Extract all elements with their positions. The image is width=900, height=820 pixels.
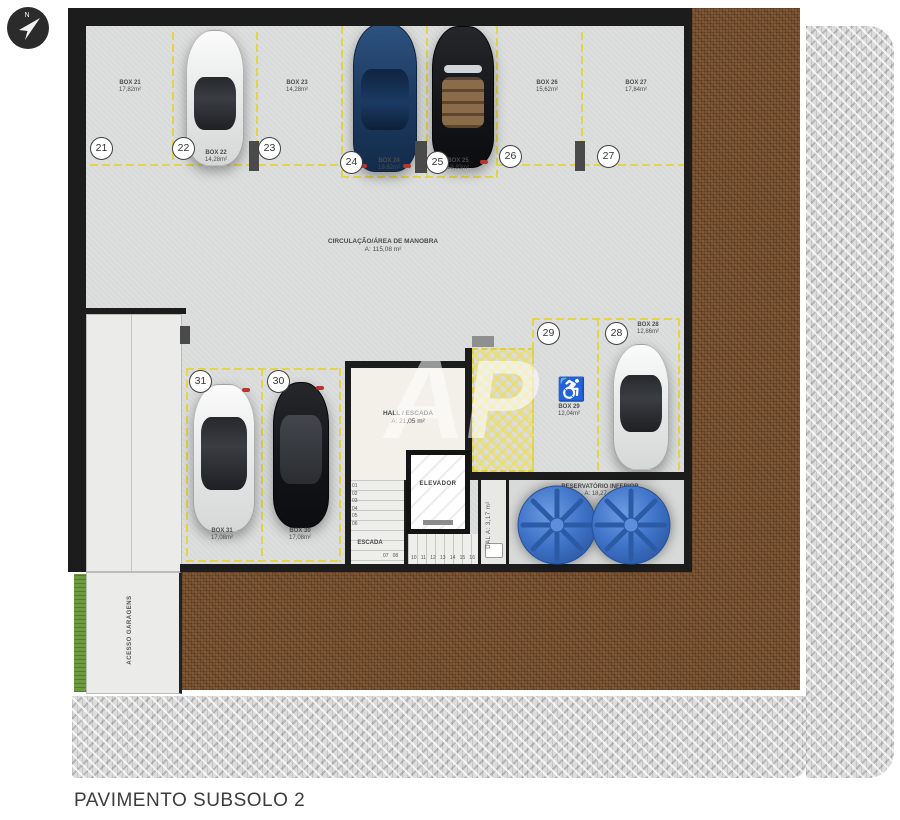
box-area-text: 17,82m² <box>102 87 158 94</box>
car-windshield <box>444 65 482 73</box>
car-box28 <box>613 344 669 470</box>
box-26-marker: 26 <box>499 145 522 168</box>
step-number: 04 <box>352 506 358 512</box>
elevator-sill <box>423 520 453 525</box>
ramp-edge-line <box>131 315 132 571</box>
box-label-text: BOX 23 <box>286 80 307 86</box>
wall-top <box>68 8 692 26</box>
parking-line <box>532 318 534 472</box>
hall-area-text: A: 21,05 m² <box>363 418 453 426</box>
car-cabin <box>201 417 247 490</box>
water-tanks <box>509 481 684 565</box>
box-area-text: 12,04m² <box>541 411 597 418</box>
column <box>575 141 585 171</box>
parking-line <box>498 164 684 166</box>
parking-line <box>341 176 498 178</box>
box-area-text: 19,83m² <box>430 165 486 172</box>
box-24-label: BOX 24 19,82m² <box>361 158 417 171</box>
box-24-marker: 24 <box>340 151 363 174</box>
circulation-label: CIRCULAÇÃO/ÁREA DE MANOBRA A: 115,08 m² <box>303 238 463 253</box>
step-number: 06 <box>352 521 358 527</box>
box-29-marker: 29 <box>537 322 560 345</box>
elevator-shaft: ELEVADOR <box>406 450 470 534</box>
box-label-text: BOX 21 <box>119 80 140 86</box>
parking-line <box>186 368 188 562</box>
box-area-text: 12,86m² <box>620 329 676 336</box>
car-cabin <box>194 77 237 131</box>
hall-label: HALL / ESCADA A: 21,05 m² <box>363 410 453 425</box>
car-interior <box>442 77 484 127</box>
step-number: 16 <box>469 555 475 561</box>
step-number: 12 <box>430 555 436 561</box>
north-letter: N <box>24 12 29 19</box>
box-label-text: BOX 24 <box>378 158 399 164</box>
step-number: 11 <box>421 555 426 561</box>
dal-room <box>481 480 506 564</box>
hatched-area <box>472 348 534 472</box>
paver-walkway-bottom <box>72 696 806 778</box>
step-number: 14 <box>450 555 456 561</box>
parking-line <box>186 560 341 562</box>
step-number: 03 <box>352 498 358 504</box>
box-31-marker: 31 <box>189 370 212 393</box>
box-21-label: BOX 21 17,82m² <box>102 80 158 93</box>
wall-reservoir-top <box>465 472 684 480</box>
step-number: 05 <box>352 513 358 519</box>
box-27-label: BOX 27 17,84m² <box>608 80 664 93</box>
box-28-label: BOX 28 12,86m² <box>620 322 676 335</box>
box-label-text: BOX 30 <box>289 528 310 534</box>
box-30-marker: 30 <box>267 370 290 393</box>
box-21-marker: 21 <box>90 137 113 160</box>
box-29-label: BOX 29 12,04m² <box>541 404 597 417</box>
step-number: 02 <box>352 491 358 497</box>
box-label-text: BOX 22 <box>205 150 226 156</box>
step-number: 01 <box>352 483 358 489</box>
wall-hall-top <box>351 361 465 368</box>
box-area-text: 17,08m² <box>194 535 250 542</box>
wall-bottom <box>180 564 692 572</box>
box-31-label: BOX 31 17,08m² <box>194 528 250 541</box>
paver-walkway-right <box>806 26 894 778</box>
parking-line <box>532 318 680 320</box>
parking-line <box>597 318 599 472</box>
box-23-marker: 23 <box>258 137 281 160</box>
parking-line <box>186 368 341 370</box>
parking-line <box>496 26 498 178</box>
north-arrow-icon: N <box>6 6 50 50</box>
stairs-upper-flight <box>351 480 406 564</box>
step-number: 08 <box>393 553 399 559</box>
step-number: 13 <box>440 555 446 561</box>
step-number: 15 <box>460 555 466 561</box>
water-tank-left <box>518 486 596 564</box>
water-tank-right <box>592 486 670 564</box>
parking-line <box>678 318 680 472</box>
garage-access-label: ACESSO GARAGENS <box>127 575 133 685</box>
hall-label-text: HALL / ESCADA <box>383 410 433 417</box>
stair-step-numbers-bottom: 10 11 12 13 14 15 16 <box>411 555 475 561</box>
box-area-text: 19,82m² <box>361 165 417 172</box>
box-label-text: BOX 28 <box>637 322 658 328</box>
stair-step-numbers-left: 01 02 03 04 05 06 <box>352 483 358 527</box>
taillight <box>242 388 250 392</box>
box-area-text: 17,08m² <box>272 535 328 542</box>
dal-label: DAL A: 3,17 m² <box>486 495 492 555</box>
box-22-label: BOX 22 14,28m² <box>188 150 244 163</box>
box-label-text: BOX 31 <box>211 528 232 534</box>
box-23-label: BOX 23 14,28m² <box>269 80 325 93</box>
stairs-label: ESCADA <box>347 540 393 548</box>
car-box24 <box>353 24 417 172</box>
stair-step-numbers-mid: 07 08 <box>383 553 398 559</box>
car-cabin <box>280 415 321 484</box>
wall-ramp-top <box>86 308 186 314</box>
wall-right <box>684 8 692 572</box>
box-label-text: BOX 27 <box>625 80 646 86</box>
car-cabin <box>361 69 408 130</box>
box-area-text: 14,28m² <box>269 87 325 94</box>
step-number: 10 <box>411 555 417 561</box>
wheelchair-icon: ♿ <box>557 376 586 403</box>
circulation-area-text: A: 115,08 m² <box>303 246 463 254</box>
page-title: PAVIMENTO SUBSOLO 2 <box>74 790 305 812</box>
box-area-text: 17,84m² <box>608 87 664 94</box>
dal-area-text: A: 3,17 m² <box>486 501 492 534</box>
taillight <box>316 386 324 390</box>
car-cabin <box>620 375 661 432</box>
box-30-label: BOX 30 17,08m² <box>272 528 328 541</box>
dal-label-text: DAL <box>486 536 492 549</box>
car-box25-convertible <box>432 26 494 168</box>
car-box30 <box>273 382 329 528</box>
box-27-marker: 27 <box>597 145 620 168</box>
box-label-text: BOX 29 <box>558 404 579 410</box>
wall-dal-left <box>478 480 481 564</box>
column-gray <box>472 336 494 347</box>
step-number: 07 <box>383 553 389 559</box>
garage-ramp-upper <box>86 314 182 572</box>
elevator-label: ELEVADOR <box>411 481 465 487</box>
box-area-text: 15,62m² <box>519 87 575 94</box>
column <box>180 326 190 344</box>
wall-left <box>68 8 86 572</box>
garage-ramp-lower: ACESSO GARAGENS <box>86 572 182 694</box>
stairs-label-text: ESCADA <box>357 540 382 546</box>
box-25-label: BOX 25 19,83m² <box>430 158 486 171</box>
car-box31-suv <box>193 384 255 532</box>
box-label-text: BOX 25 <box>447 158 468 164</box>
parking-line <box>339 368 341 562</box>
parking-line <box>261 368 263 562</box>
box-area-text: 14,28m² <box>188 157 244 164</box>
box-26-label: BOX 26 15,62m² <box>519 80 575 93</box>
box-label-text: BOX 26 <box>536 80 557 86</box>
earth-fill-bottom <box>182 572 800 690</box>
circulation-label-text: CIRCULAÇÃO/ÁREA DE MANOBRA <box>328 238 438 245</box>
floor-plan-canvas: ACESSO GARAGENS HALL / ESCADA A: 21,05 m… <box>0 0 900 820</box>
